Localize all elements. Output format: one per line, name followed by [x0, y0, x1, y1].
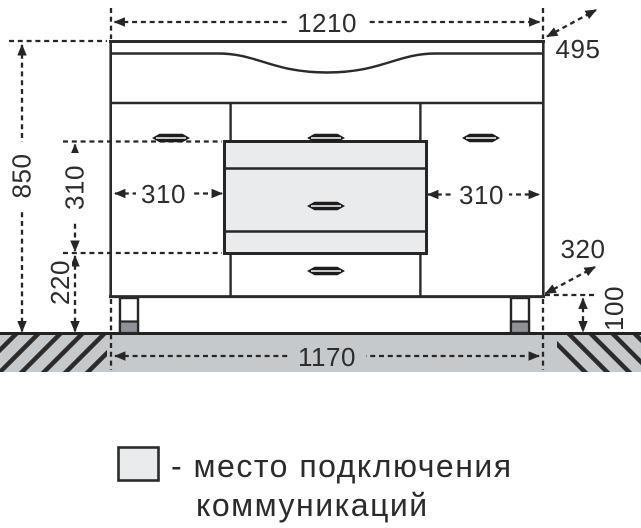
left-leg-foot	[120, 322, 138, 334]
dim-comm-floor-offset-label: 220	[45, 260, 75, 305]
dim-comm-height-label: 310	[60, 165, 90, 210]
middle-drawer-handle	[307, 202, 345, 210]
dim-leg-height-label: 100	[599, 286, 629, 331]
legend-text-line2: коммуникаций	[196, 487, 429, 523]
right-door-handle	[462, 134, 500, 142]
dim-base-width-label: 1170	[298, 342, 356, 372]
dim-comm-depth-label: 320	[561, 234, 606, 264]
sink-front-curve	[111, 54, 544, 73]
dim-line-depth	[547, 10, 596, 37]
top-drawer-handle	[307, 134, 345, 142]
bottom-drawer-handle	[307, 267, 345, 275]
vanity-dimension-diagram: 1210 495 850 310 220 310 310 320 100 117…	[0, 0, 641, 528]
dim-top-width-label: 1210	[297, 8, 357, 38]
dim-left-door-width-label: 310	[141, 179, 186, 209]
right-leg-foot	[511, 322, 529, 334]
legend-text-line1: - место подключения	[171, 448, 513, 484]
dim-right-door-width-label: 310	[459, 180, 504, 210]
communications-area	[225, 142, 427, 254]
left-door-handle	[152, 134, 190, 142]
dim-depth-label: 495	[556, 34, 601, 64]
communications-area-box	[225, 142, 427, 254]
diagram-canvas: 1210 495 850 310 220 310 310 320 100 117…	[0, 0, 641, 528]
dim-total-height-label: 850	[7, 154, 37, 199]
legend-comm-area-swatch	[119, 448, 159, 481]
legs	[120, 298, 529, 333]
dim-line-comm-depth	[546, 267, 596, 294]
legend: - место подключения коммуникаций	[119, 448, 513, 524]
